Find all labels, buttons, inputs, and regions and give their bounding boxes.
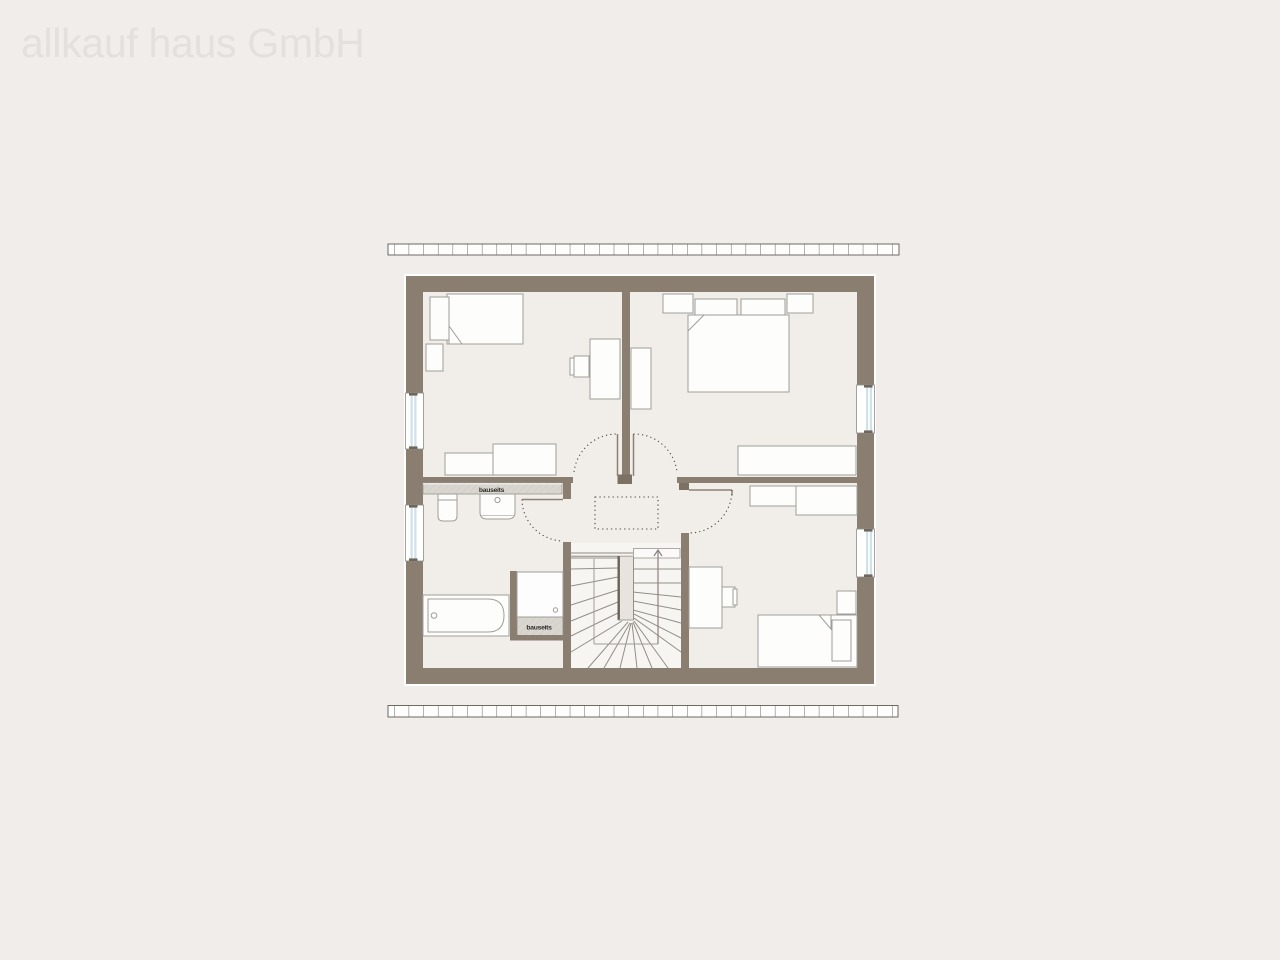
svg-text:bauseits: bauseits — [479, 487, 505, 494]
svg-text:bauseits: bauseits — [526, 625, 552, 632]
